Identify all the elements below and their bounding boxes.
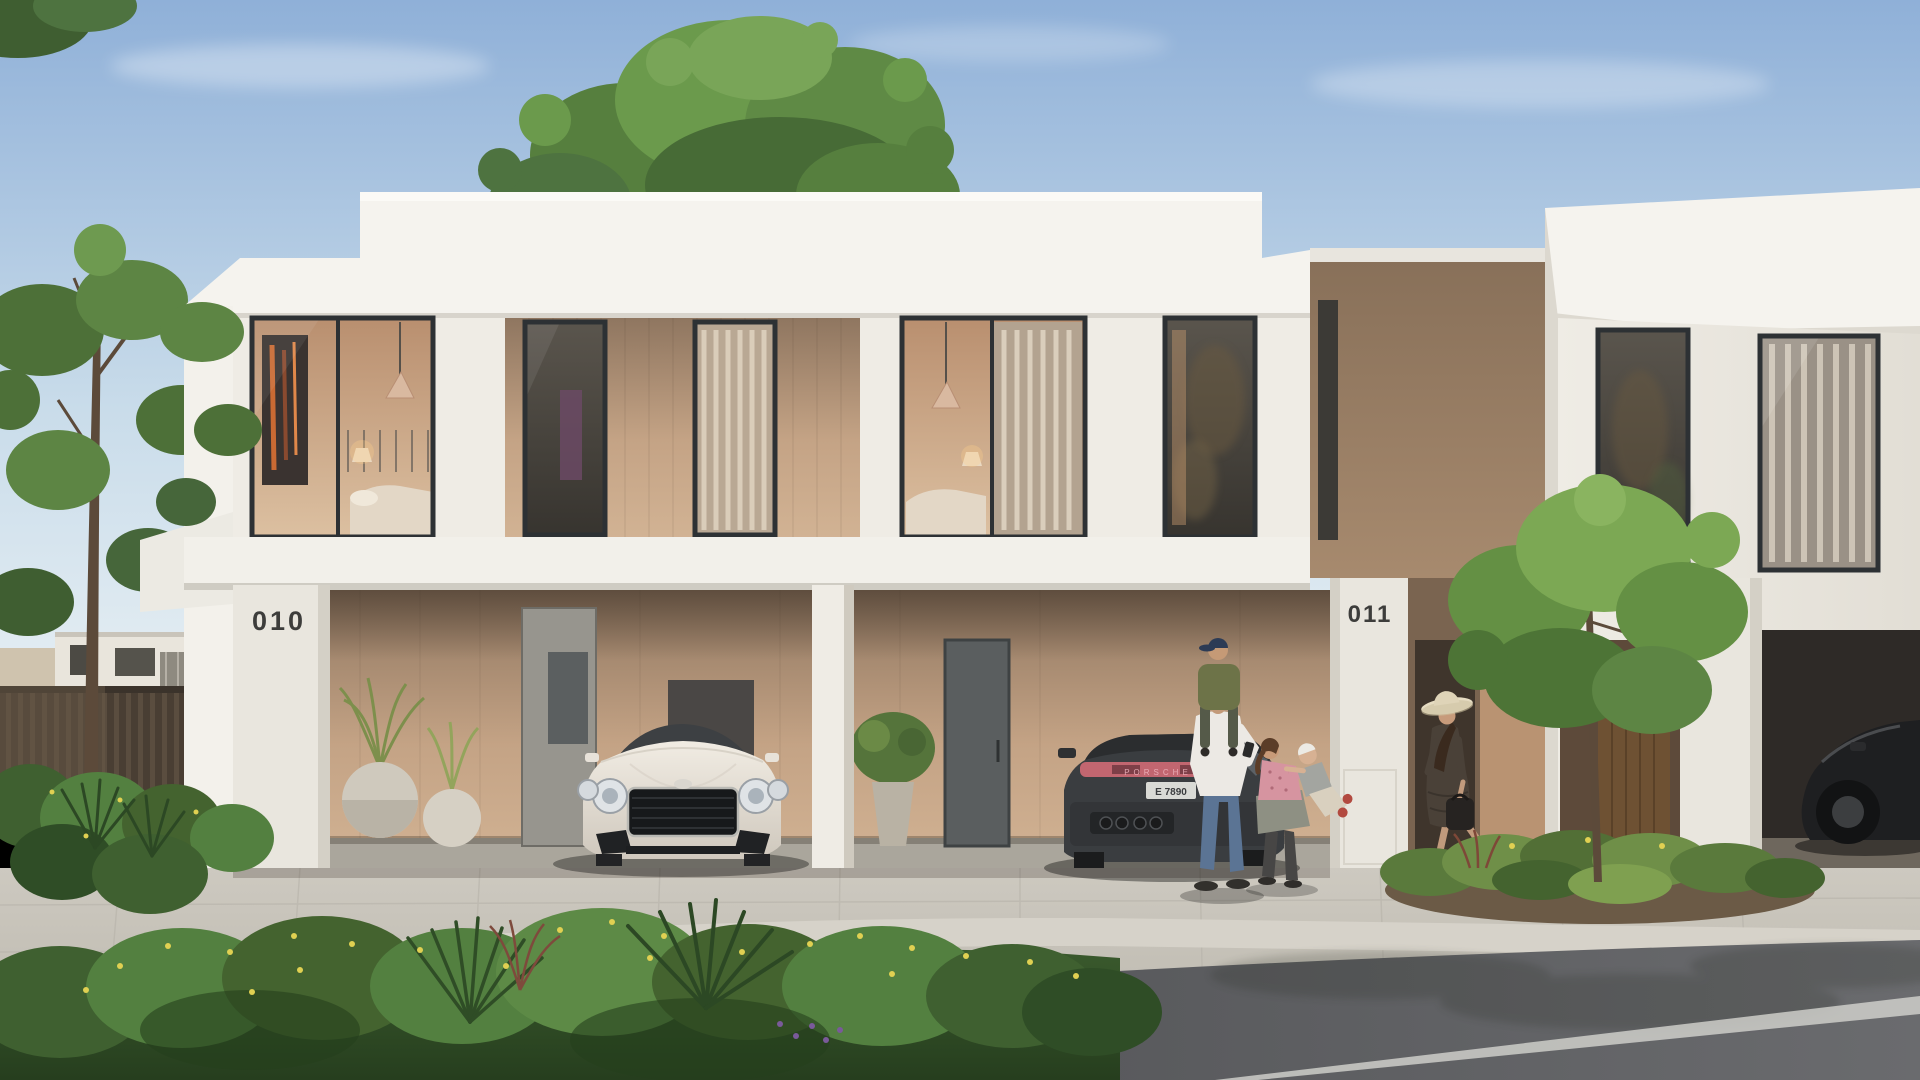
window-bedroom-left: [252, 318, 433, 537]
window-tall-left: [525, 322, 605, 535]
window-right-b: [1760, 336, 1878, 570]
right-fascia: [1545, 188, 1920, 336]
porsche-badge-text: PORSCHE: [1124, 768, 1192, 777]
front-door-middle: [945, 640, 1009, 846]
bentley-badge: [674, 779, 692, 789]
unit-number-010: 010: [252, 606, 306, 636]
pillar-unit-011: 011: [1330, 578, 1408, 872]
townhouse-render-canvas: 010 011: [0, 0, 1920, 1080]
window-bedroom-centre: [902, 318, 1085, 537]
handbag: [1446, 798, 1474, 830]
balcony-slab: [184, 537, 1310, 590]
roof-box: [360, 192, 1262, 265]
roof-fascia: [184, 250, 1310, 318]
window-tall-right: [1165, 318, 1255, 537]
unit-number-011: 011: [1348, 601, 1393, 628]
window-tall-curtain: [695, 322, 775, 535]
rendered-scene: 010 011: [0, 0, 1920, 1080]
license-plate-text: E 7890: [1155, 787, 1187, 798]
